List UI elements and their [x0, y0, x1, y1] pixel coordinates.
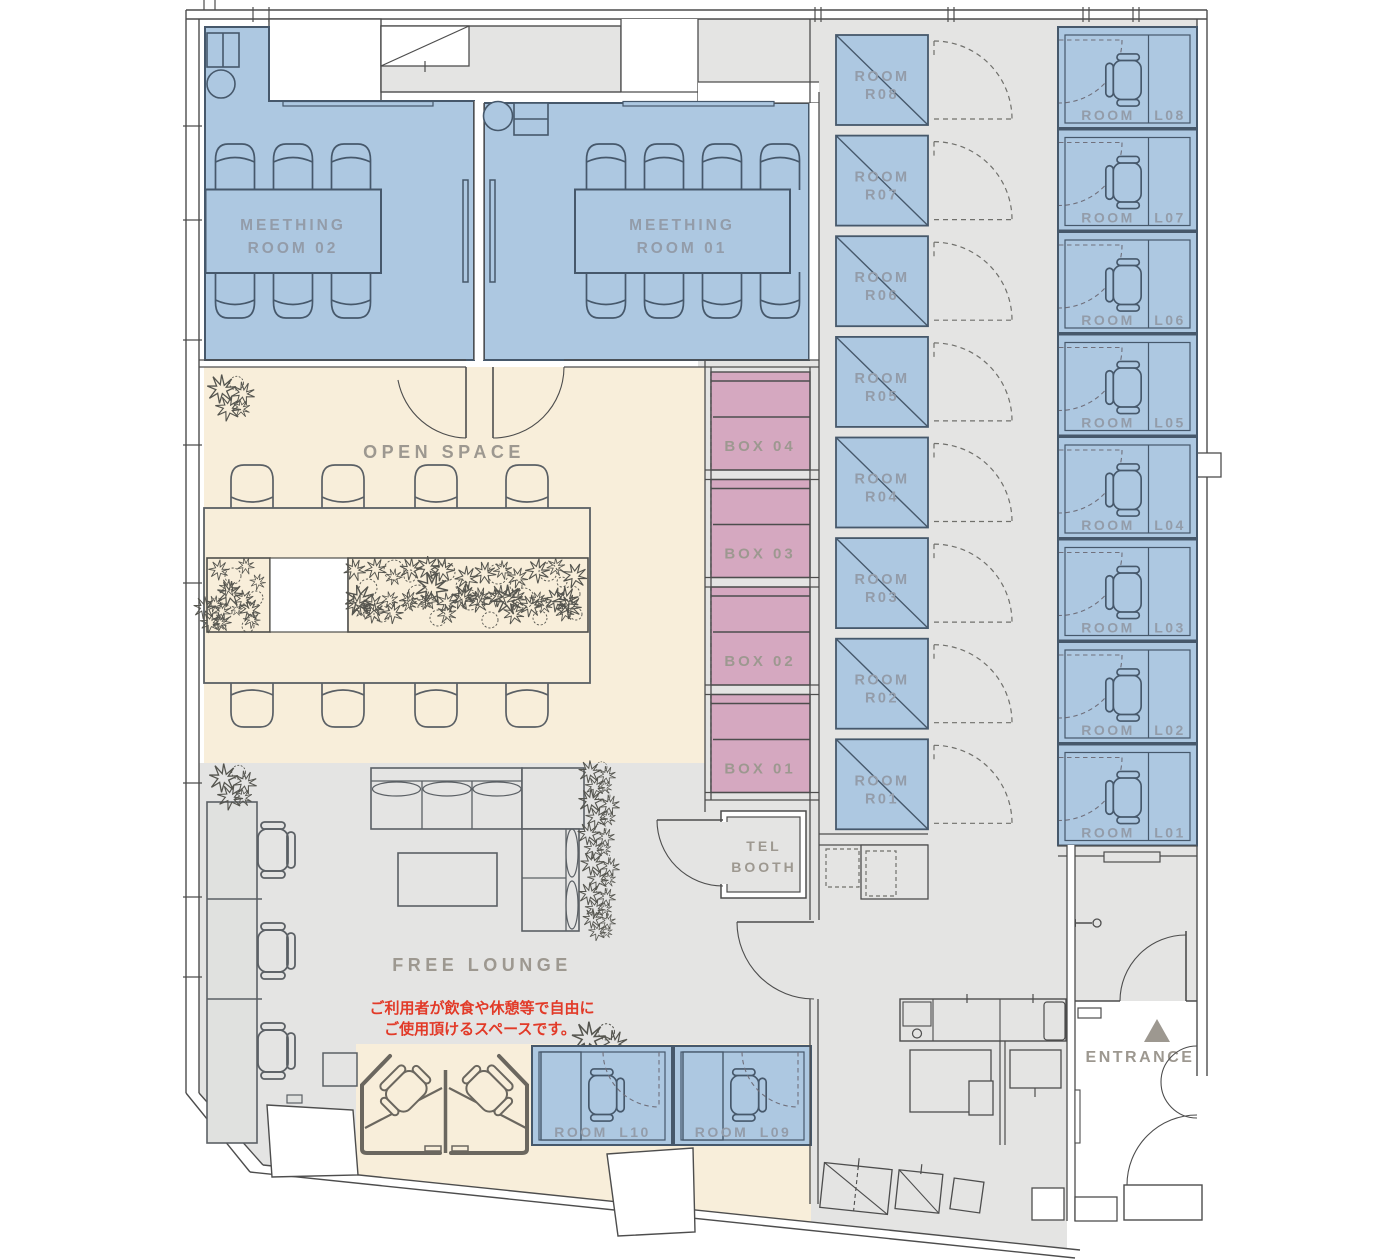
svg-text:ROOM: ROOM [1081, 620, 1135, 636]
svg-text:ROOM 02: ROOM 02 [248, 240, 339, 257]
svg-text:ROOM: ROOM [854, 371, 909, 387]
svg-text:L04: L04 [1154, 517, 1186, 533]
svg-text:ROOM: ROOM [854, 69, 909, 85]
svg-text:L07: L07 [1154, 210, 1186, 226]
svg-text:R06: R06 [865, 288, 899, 304]
svg-text:L01: L01 [1154, 825, 1186, 841]
svg-text:MEETHING: MEETHING [240, 217, 346, 234]
svg-text:ROOM: ROOM [854, 572, 909, 588]
svg-text:ROOM: ROOM [854, 472, 909, 488]
svg-text:ROOM: ROOM [1081, 107, 1135, 123]
svg-text:R02: R02 [865, 691, 899, 707]
svg-text:BOX 02: BOX 02 [724, 653, 795, 670]
svg-text:L06: L06 [1154, 312, 1186, 328]
svg-text:ROOM: ROOM [854, 270, 909, 286]
svg-text:L02: L02 [1154, 722, 1186, 738]
svg-text:ROOM: ROOM [854, 673, 909, 689]
svg-text:ROOM: ROOM [695, 1124, 749, 1140]
svg-text:ROOM: ROOM [1081, 210, 1135, 226]
svg-text:ご利用者が飲食や休憩等で自由に: ご利用者が飲食や休憩等で自由に [369, 999, 594, 1017]
svg-text:TEL: TEL [746, 838, 781, 854]
svg-text:R01: R01 [865, 791, 899, 807]
svg-text:L05: L05 [1154, 415, 1186, 431]
svg-text:R08: R08 [865, 87, 899, 103]
svg-text:ROOM: ROOM [1081, 825, 1135, 841]
svg-text:L03: L03 [1154, 620, 1186, 636]
svg-text:R05: R05 [865, 389, 899, 405]
svg-text:OPEN SPACE: OPEN SPACE [363, 442, 525, 462]
svg-text:MEETHING: MEETHING [629, 217, 735, 234]
svg-text:ご使用頂けるスペースです。: ご使用頂けるスペースです。 [384, 1020, 576, 1038]
svg-text:ROOM: ROOM [554, 1124, 608, 1140]
svg-text:L08: L08 [1154, 107, 1186, 123]
svg-text:L09: L09 [760, 1124, 792, 1140]
svg-text:ROOM: ROOM [1081, 415, 1135, 431]
svg-text:BOX 01: BOX 01 [724, 761, 795, 778]
svg-text:ROOM: ROOM [1081, 722, 1135, 738]
svg-text:FREE LOUNGE: FREE LOUNGE [392, 955, 572, 975]
svg-text:ROOM: ROOM [854, 773, 909, 789]
svg-text:R07: R07 [865, 188, 899, 204]
svg-text:ROOM: ROOM [854, 170, 909, 186]
svg-text:R03: R03 [865, 590, 899, 606]
svg-text:BOX 03: BOX 03 [724, 546, 795, 563]
svg-text:ROOM: ROOM [1081, 312, 1135, 328]
svg-text:ROOM: ROOM [1081, 517, 1135, 533]
svg-text:BOOTH: BOOTH [731, 859, 797, 875]
svg-text:BOX 04: BOX 04 [724, 438, 795, 455]
svg-text:L10: L10 [619, 1124, 651, 1140]
svg-text:R04: R04 [865, 490, 899, 506]
svg-text:ROOM 01: ROOM 01 [637, 240, 728, 257]
